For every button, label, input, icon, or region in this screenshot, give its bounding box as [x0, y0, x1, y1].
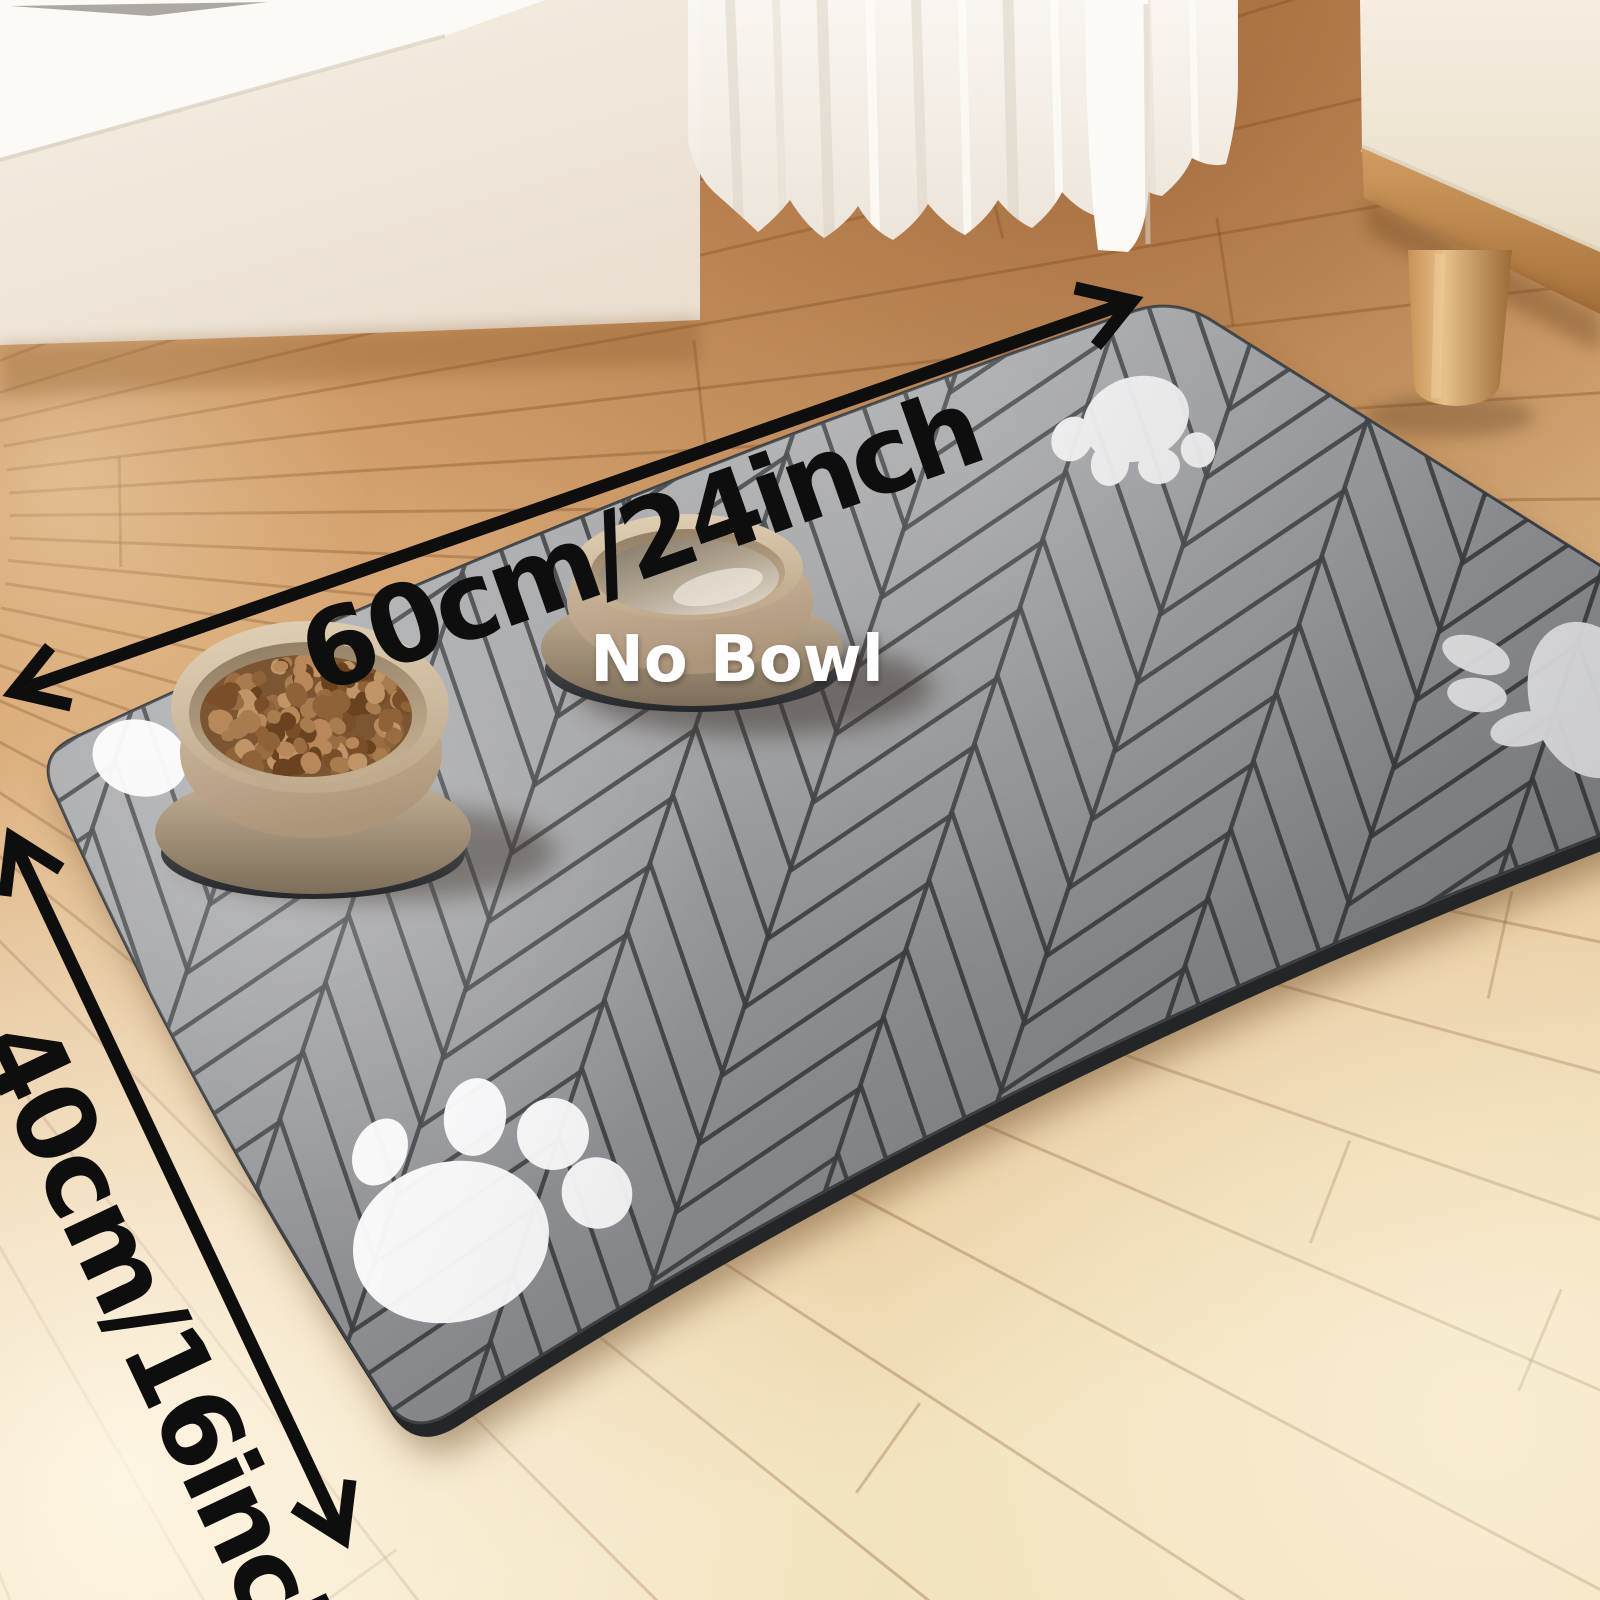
product-photo: 60cm/24inch 40cm/16inch No Bowl	[0, 0, 1600, 1600]
cabinet-leg-highlight	[1436, 254, 1440, 398]
pet-feeding-mat-scene: 60cm/24inch 40cm/16inch No Bowl	[0, 0, 1600, 1600]
door-frame	[1085, 0, 1150, 252]
no-bowl-label: No Bowl	[590, 623, 884, 697]
door-frame-shade	[1146, 4, 1148, 244]
cabinet-leg	[1408, 250, 1512, 406]
wall	[0, 0, 700, 398]
